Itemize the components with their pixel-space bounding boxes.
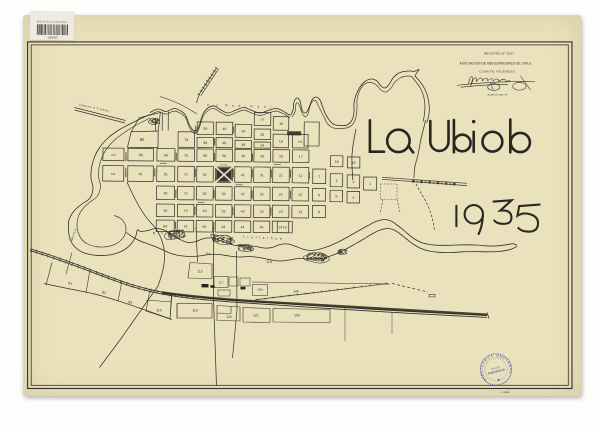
svg-text:52: 52 (222, 192, 226, 196)
svg-text:70: 70 (184, 154, 188, 158)
svg-text:40: 40 (241, 154, 245, 158)
svg-text:MEJICO: MEJICO (70, 227, 78, 241)
svg-text:100: 100 (294, 314, 300, 318)
svg-text:49: 49 (222, 141, 226, 145)
svg-text:114: 114 (205, 252, 210, 256)
svg-text:140: 140 (293, 290, 299, 294)
svg-text:82: 82 (164, 191, 168, 195)
svg-text:38: 38 (241, 129, 245, 133)
svg-text:34: 34 (259, 225, 263, 229)
svg-text:91: 91 (68, 281, 72, 285)
svg-text:46: 46 (222, 127, 226, 131)
svg-text:91: 91 (139, 172, 143, 176)
svg-text:23: 23 (279, 210, 283, 214)
svg-text:32: 32 (260, 192, 264, 196)
svg-text:Camino a Trumao: Camino a Trumao (79, 103, 110, 113)
svg-text:73: 73 (184, 209, 188, 213)
svg-text:ADMINISTRADOR: ADMINISTRADOR (487, 94, 507, 97)
svg-text:11: 11 (299, 174, 303, 178)
svg-text:2: 2 (352, 180, 354, 184)
svg-text:21: 21 (279, 173, 283, 177)
svg-text:31: 31 (260, 173, 264, 177)
svg-text:100: 100 (111, 153, 116, 157)
svg-text:42: 42 (241, 192, 245, 196)
svg-text:15: 15 (352, 161, 356, 165)
svg-text:79: 79 (184, 138, 188, 142)
svg-text:86: 86 (140, 137, 145, 142)
svg-text:L l o l l e l h u e: L l o l l e l h u e (243, 235, 283, 241)
svg-text:12: 12 (298, 193, 302, 197)
svg-text:93: 93 (128, 300, 132, 304)
svg-text:83: 83 (163, 209, 167, 213)
svg-text:30: 30 (260, 154, 264, 158)
svg-text:81: 81 (164, 172, 168, 176)
svg-text:50: 50 (222, 154, 226, 158)
svg-text:e. müller: e. müller (500, 391, 509, 394)
svg-text:72: 72 (184, 192, 188, 196)
svg-text:92: 92 (102, 290, 106, 294)
svg-text:18: 18 (279, 122, 283, 126)
svg-text:1055065: 1055065 (47, 35, 58, 39)
svg-text:110: 110 (156, 309, 162, 313)
svg-text:7: 7 (318, 175, 320, 179)
svg-text:101: 101 (111, 172, 116, 176)
svg-text:COMITE INCENDIO: COMITE INCENDIO (479, 69, 515, 73)
svg-text:33: 33 (260, 210, 264, 214)
svg-text:60: 60 (203, 154, 207, 158)
svg-text:41: 41 (241, 173, 245, 177)
svg-text:119a: 119a (257, 288, 263, 292)
svg-text:8: 8 (318, 193, 320, 197)
svg-text:84: 84 (163, 224, 167, 228)
svg-text:59: 59 (203, 141, 207, 145)
svg-text:64: 64 (202, 225, 206, 229)
svg-text:BIBLIOTECA NACIONAL: BIBLIOTECA NACIONAL (37, 20, 68, 23)
svg-text:16: 16 (335, 160, 339, 164)
svg-text:117: 117 (219, 281, 224, 285)
svg-text:39: 39 (241, 143, 245, 147)
svg-text:119: 119 (192, 309, 198, 313)
svg-text:1: 1 (369, 182, 371, 186)
svg-text:P. Armas: P. Armas (220, 163, 228, 166)
svg-text:90: 90 (139, 153, 143, 157)
svg-text:5: 5 (335, 194, 337, 198)
svg-text:13: 13 (298, 210, 302, 214)
svg-text:26: 26 (260, 133, 264, 137)
svg-text:44: 44 (240, 225, 244, 229)
svg-text:22: 22 (279, 192, 283, 196)
svg-text:54: 54 (221, 225, 225, 229)
svg-text:118: 118 (266, 260, 272, 264)
svg-text:120: 120 (226, 315, 232, 319)
svg-text:121: 121 (253, 314, 259, 318)
svg-text:113: 113 (197, 270, 202, 274)
svg-text:71: 71 (184, 173, 188, 177)
svg-text:63: 63 (203, 209, 207, 213)
svg-text:53: 53 (222, 209, 226, 213)
svg-text:19a: 19a (298, 140, 303, 144)
svg-text:24: 24 (260, 144, 264, 148)
svg-text:74: 74 (183, 225, 187, 229)
svg-text:REGISTRO Nº 3237: REGISTRO Nº 3237 (484, 52, 514, 56)
svg-text:62: 62 (203, 192, 207, 196)
svg-text:17: 17 (299, 155, 303, 159)
svg-text:3: 3 (352, 196, 354, 200)
svg-text:✱: ✱ (497, 378, 501, 383)
svg-text:43: 43 (241, 210, 245, 214)
svg-text:80: 80 (164, 153, 168, 157)
svg-text:19: 19 (279, 139, 283, 143)
svg-text:20: 20 (279, 154, 283, 158)
svg-text:61: 61 (203, 173, 207, 177)
svg-text:10: 10 (283, 226, 287, 230)
svg-text:27: 27 (261, 118, 265, 122)
svg-text:58: 58 (203, 127, 207, 131)
svg-text:ASOCIACION DE ASEGURADORES DE: ASOCIACION DE ASEGURADORES DE CHILE (459, 61, 531, 65)
svg-text:9: 9 (318, 210, 320, 214)
svg-text:4: 4 (336, 179, 338, 183)
